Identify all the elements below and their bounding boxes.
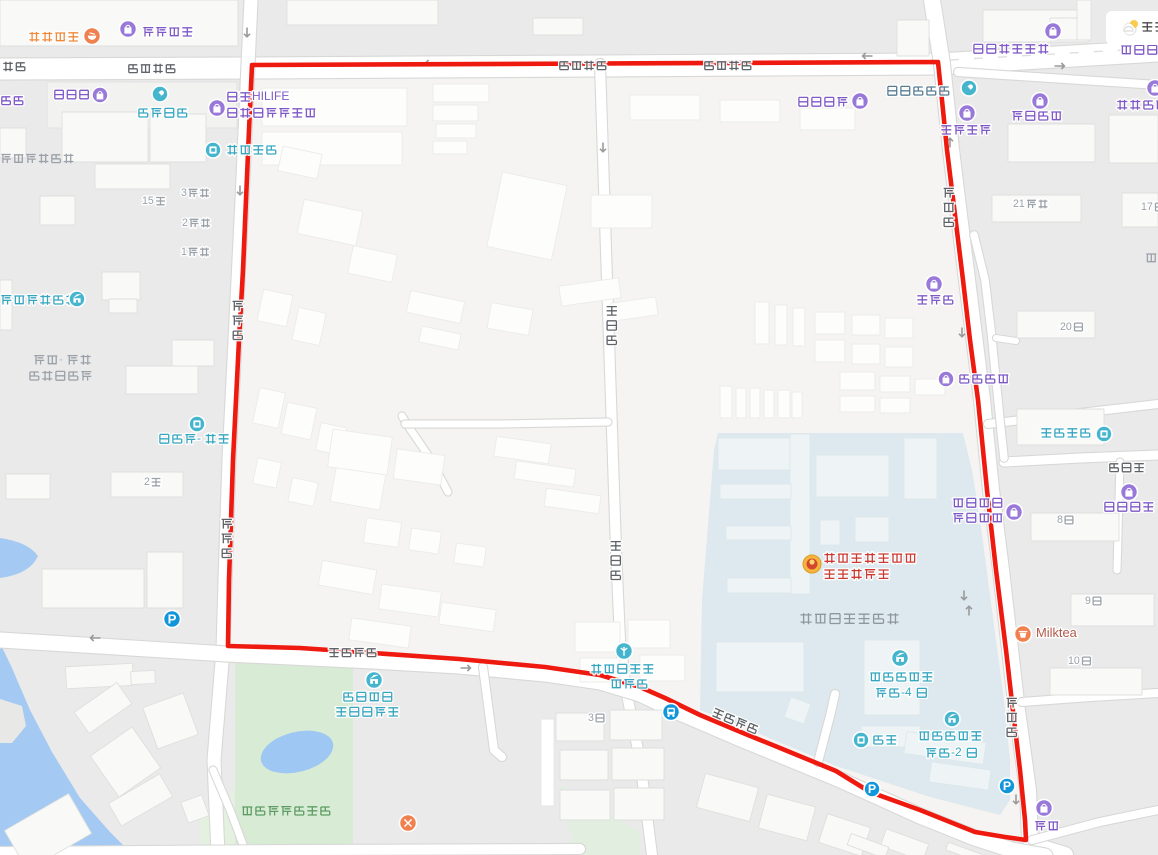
svg-text:15: 15: [142, 195, 154, 207]
svg-text:-4: -4: [901, 685, 912, 699]
svg-text:9: 9: [1085, 595, 1091, 607]
svg-text:2: 2: [144, 476, 150, 488]
svg-text:17: 17: [1141, 201, 1153, 213]
svg-text:P: P: [168, 611, 177, 626]
svg-text:8: 8: [1057, 514, 1063, 526]
svg-text:-2: -2: [951, 745, 962, 759]
svg-text:·: ·: [59, 352, 63, 366]
svg-text:21: 21: [1013, 198, 1025, 210]
svg-text:P: P: [1003, 779, 1011, 793]
svg-text:Milktea: Milktea: [1036, 625, 1078, 640]
svg-text:HILIFE: HILIFE: [252, 89, 289, 103]
svg-text:2: 2: [182, 217, 188, 229]
svg-text:P: P: [868, 782, 876, 796]
svg-text:20: 20: [1060, 321, 1072, 333]
svg-text:3: 3: [588, 712, 594, 724]
svg-text:1: 1: [181, 246, 187, 258]
svg-text:10: 10: [1068, 655, 1080, 667]
svg-text:3: 3: [181, 187, 187, 199]
svg-text:-: -: [197, 431, 201, 445]
